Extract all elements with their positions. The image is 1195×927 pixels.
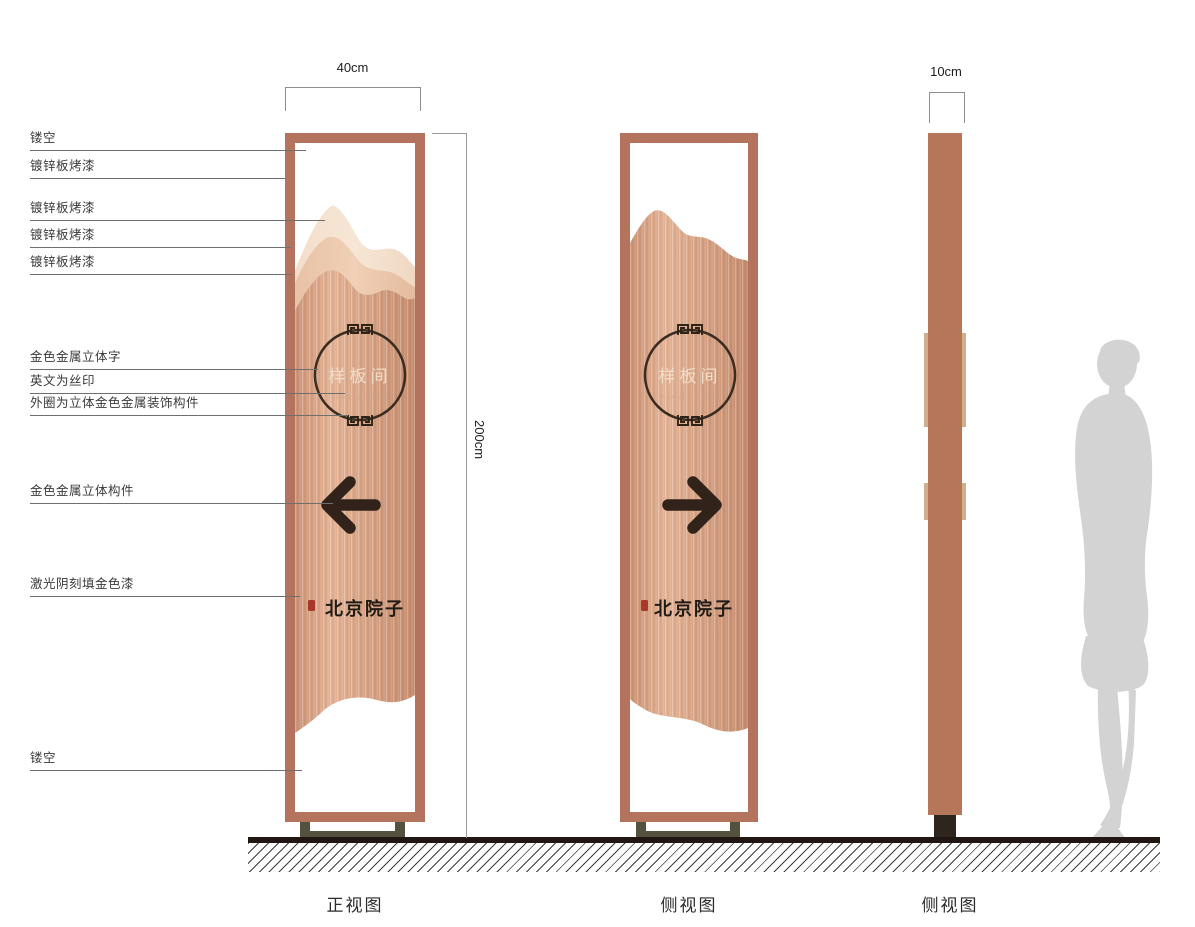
callout-label: 镂空 xyxy=(30,751,56,765)
arrow-side-tab xyxy=(962,483,966,520)
sign-body-brushed-copper xyxy=(630,210,748,731)
callout-hollow-top: 镂空 xyxy=(30,131,306,151)
profile-view-sign xyxy=(928,133,962,815)
human-silhouette xyxy=(1042,336,1182,846)
callout-gold-3d-component: 金色金属立体构件 xyxy=(30,484,333,504)
callout-laser-engraved: 激光阴刻填金色漆 xyxy=(30,577,300,597)
callout-label: 镂空 xyxy=(30,131,56,145)
front-view-artwork: 样板间 SAMPLE ROOM 北京院子 xyxy=(295,143,415,812)
callout-label: 镀锌板烤漆 xyxy=(30,201,95,215)
callout-label: 镀锌板烤漆 xyxy=(30,228,95,242)
caption-side-view: 侧视图 xyxy=(620,891,758,916)
dimension-bracket-front xyxy=(285,87,421,111)
dimension-line-height xyxy=(466,133,467,838)
callout-galvanized-4: 镀锌板烤漆 xyxy=(30,255,292,275)
dimension-front-width: 40cm xyxy=(285,60,420,75)
callout-label: 金色金属立体构件 xyxy=(30,484,134,498)
side-view-sign: 样板间 SAMPLE ROOM 北京院子 xyxy=(620,133,758,822)
dimension-height: 200cm xyxy=(471,420,487,459)
side-view-base xyxy=(636,822,740,838)
callout-label: 激光阴刻填金色漆 xyxy=(30,577,134,591)
room-name-english: SAMPLE ROOM xyxy=(661,395,718,401)
emblem-side-tab xyxy=(924,333,928,427)
front-view-base xyxy=(300,822,405,838)
callout-label: 外圈为立体金色金属装饰构件 xyxy=(30,396,199,410)
design-sheet: 镂空 镀锌板烤漆 镀锌板烤漆 镀锌板烤漆 镀锌板烤漆 金色金属立体字 英文为丝印… xyxy=(0,0,1195,927)
callout-galvanized-2: 镀锌板烤漆 xyxy=(30,201,325,221)
brand-logo-text: 北京院子 xyxy=(325,598,405,620)
callout-hollow-bottom: 镂空 xyxy=(30,751,302,771)
side-view-artwork: 样板间 SAMPLE ROOM 北京院子 xyxy=(630,143,748,812)
callout-label: 英文为丝印 xyxy=(30,374,95,388)
brand-seal-icon xyxy=(308,600,315,611)
callout-galvanized-3: 镀锌板烤漆 xyxy=(30,228,291,248)
ground-hatch xyxy=(248,843,1160,872)
callout-outer-ring-ornament: 外圈为立体金色金属装饰构件 xyxy=(30,396,348,416)
brand-logo: 北京院子 xyxy=(641,598,734,620)
front-view-sign: 样板间 SAMPLE ROOM 北京院子 xyxy=(285,133,425,822)
callout-galvanized-1: 镀锌板烤漆 xyxy=(30,159,285,179)
callout-label: 镀锌板烤漆 xyxy=(30,159,95,173)
profile-base-foot xyxy=(934,815,956,838)
callout-gold-3d-letters: 金色金属立体字 xyxy=(30,350,318,370)
caption-profile-view: 侧视图 xyxy=(880,891,1020,916)
arrow-side-tab xyxy=(924,483,928,520)
room-name-text: 样板间 xyxy=(659,367,722,386)
dimension-tick-height xyxy=(432,133,466,134)
brand-logo-text: 北京院子 xyxy=(654,598,734,620)
dimension-profile-width: 10cm xyxy=(914,64,978,79)
caption-front-view: 正视图 xyxy=(285,891,425,916)
callout-label: 镀锌板烤漆 xyxy=(30,255,95,269)
dimension-bracket-profile xyxy=(929,92,965,123)
callout-label: 金色金属立体字 xyxy=(30,350,121,364)
callout-english-silkscreen: 英文为丝印 xyxy=(30,374,345,394)
brand-seal-icon xyxy=(641,600,648,611)
emblem-side-tab xyxy=(962,333,966,427)
